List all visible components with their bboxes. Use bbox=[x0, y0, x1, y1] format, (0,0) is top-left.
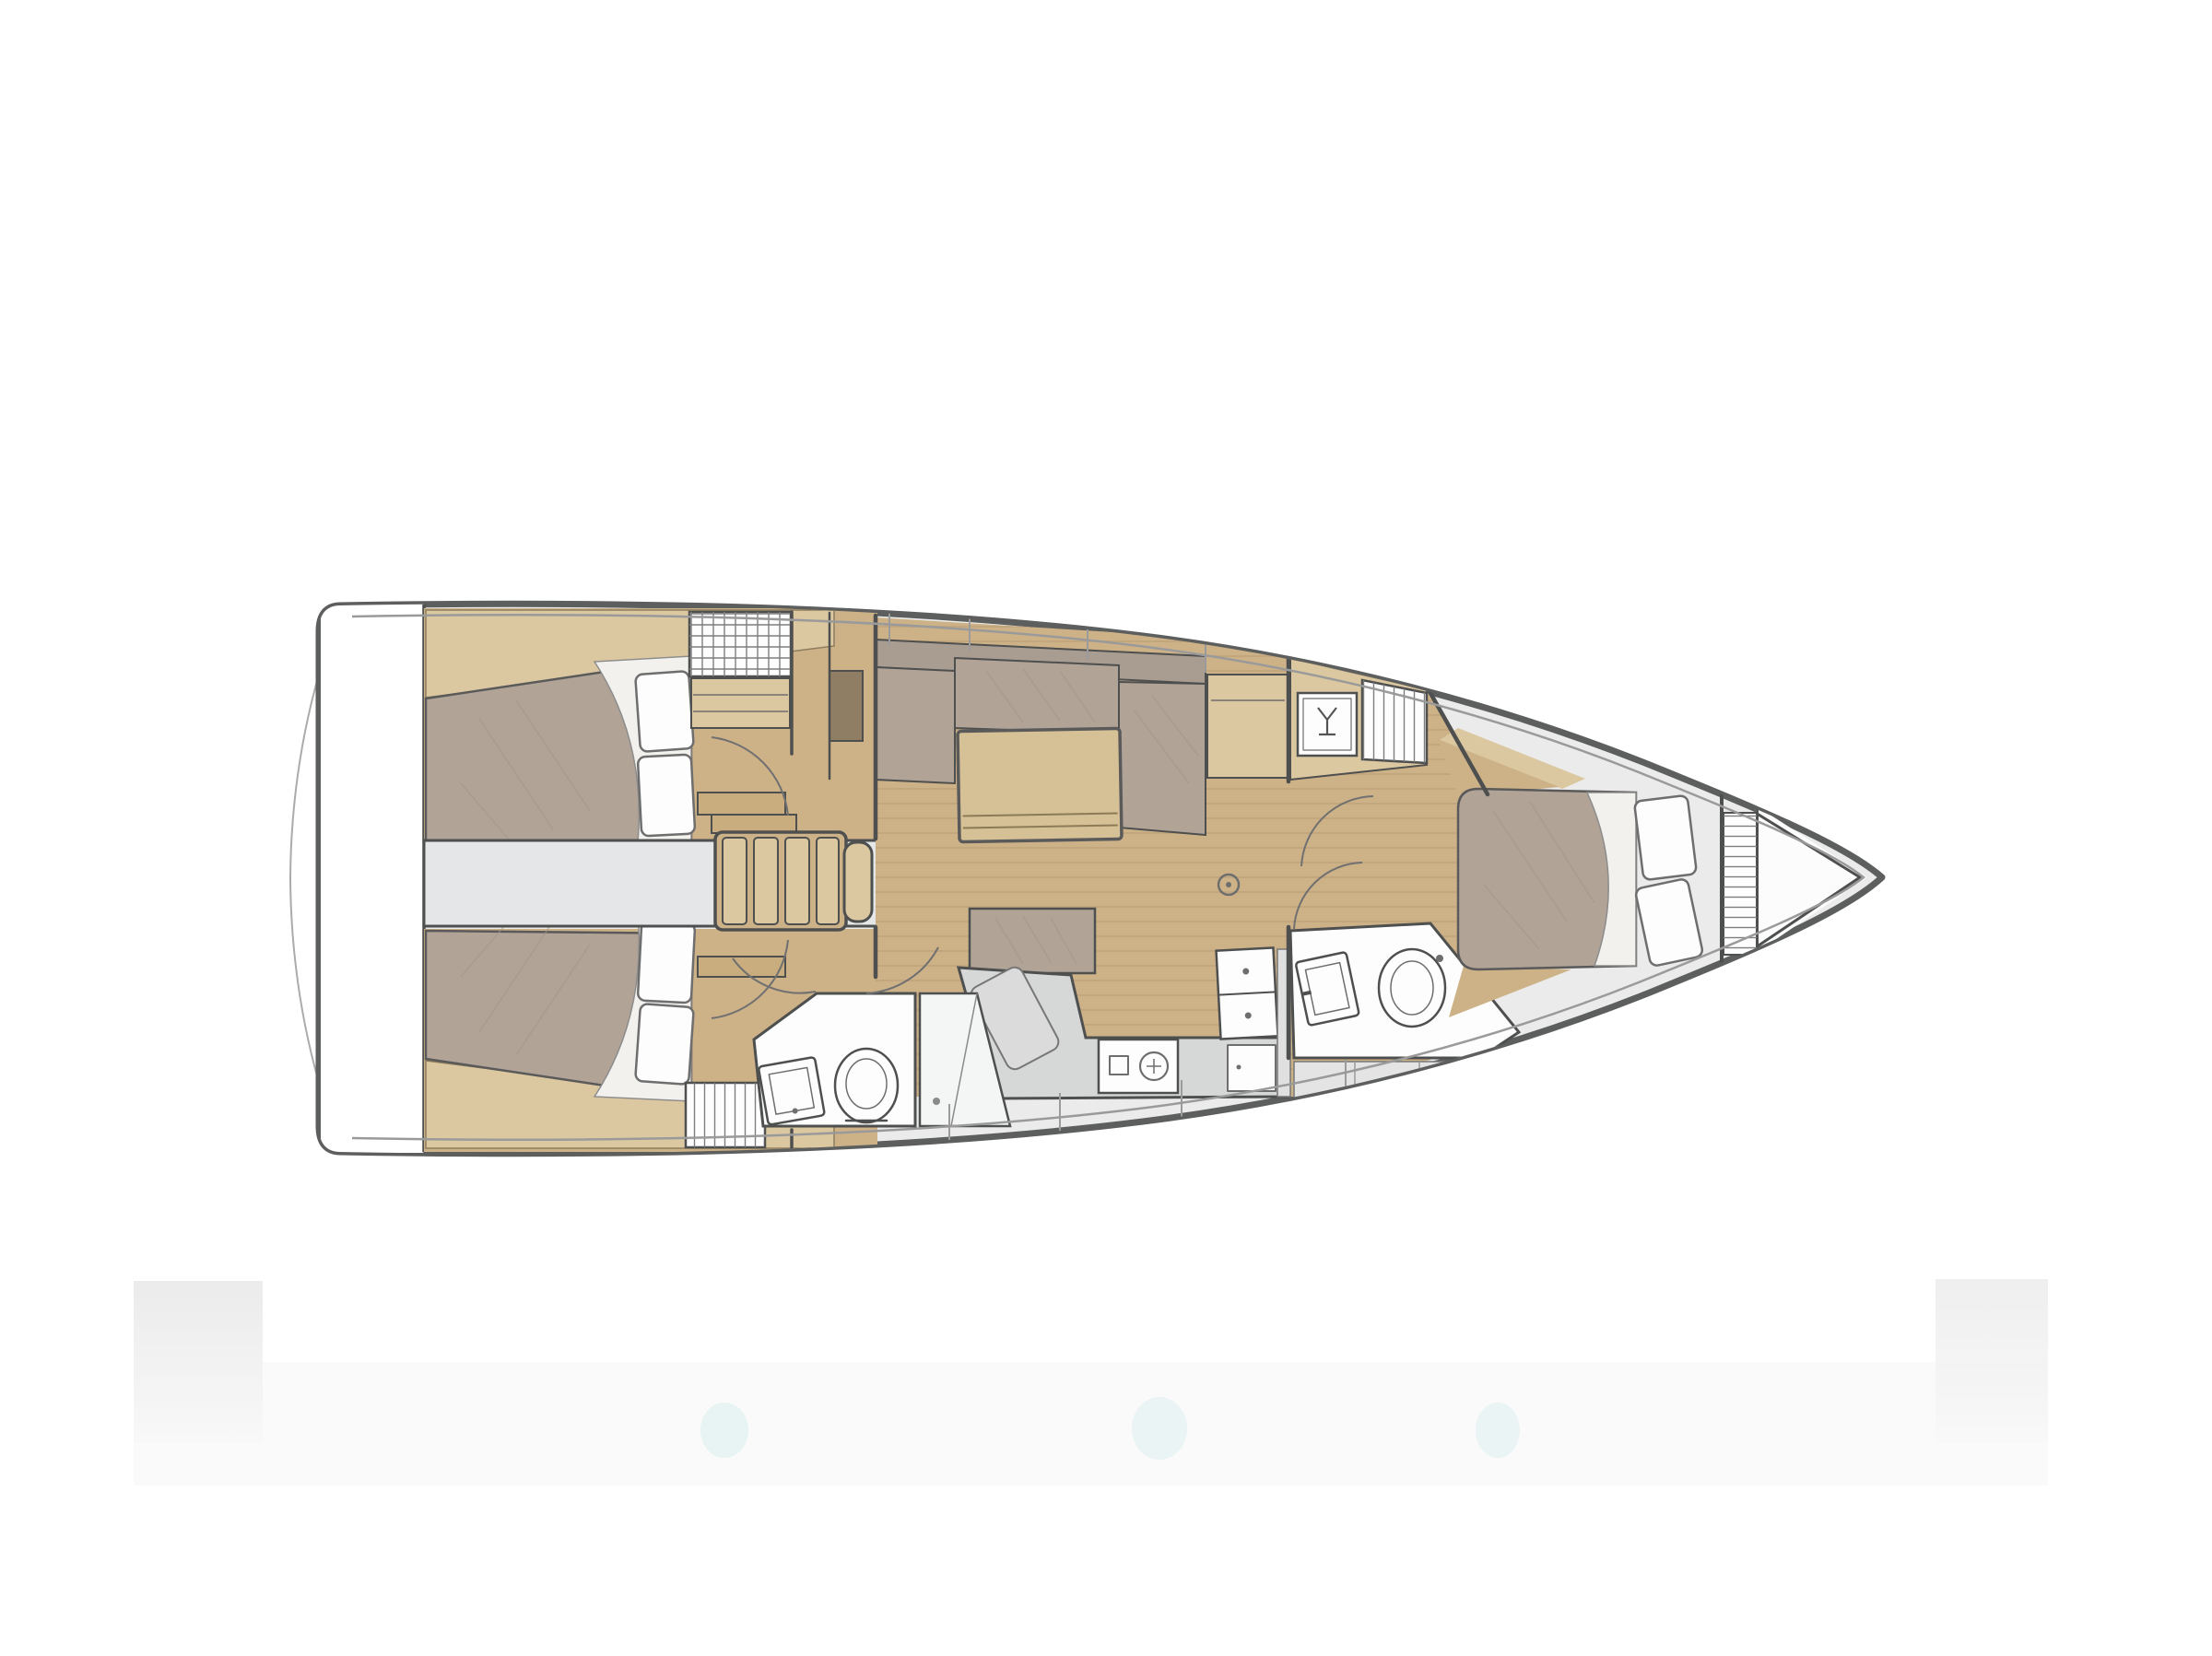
pillow bbox=[635, 671, 694, 752]
cabin-door-leaf bbox=[698, 957, 785, 977]
handrail bbox=[844, 842, 872, 922]
table-leg-dot bbox=[1226, 882, 1231, 887]
step-tread bbox=[817, 838, 839, 924]
hanging-locker-hatch-icon bbox=[1362, 680, 1427, 763]
floor-plan-canvas bbox=[0, 0, 2212, 1656]
shelf-cabinet bbox=[691, 678, 790, 728]
locker-knob bbox=[1237, 1065, 1241, 1070]
pillow bbox=[1634, 795, 1697, 880]
flush-knob bbox=[1436, 955, 1443, 962]
pillow bbox=[635, 1004, 694, 1085]
transom-locker bbox=[321, 604, 424, 1153]
pillow bbox=[638, 755, 695, 837]
watermark-band bbox=[134, 1279, 2048, 1486]
cabinet-block bbox=[1290, 658, 1427, 780]
shower-drain bbox=[933, 1098, 940, 1105]
port-aft-cabin bbox=[424, 608, 877, 863]
watermark-smudge bbox=[700, 1403, 748, 1458]
step-tread bbox=[723, 838, 747, 924]
bridge-deck bbox=[712, 815, 796, 833]
watermark-strip bbox=[134, 1362, 2048, 1486]
cross-hatch-locker-icon bbox=[689, 612, 791, 676]
wall-cabinet bbox=[829, 671, 863, 741]
aft-head bbox=[754, 993, 1010, 1126]
sink-icon bbox=[759, 1057, 825, 1125]
watermark-block-left bbox=[134, 1281, 263, 1443]
cabin-door-leaf bbox=[698, 793, 785, 815]
saloon-table bbox=[958, 728, 1122, 841]
sink-unit bbox=[1217, 947, 1278, 1039]
page bbox=[0, 0, 2212, 1656]
watermark-smudge bbox=[1476, 1403, 1520, 1458]
watermark-smudge bbox=[1132, 1397, 1187, 1460]
locker-door bbox=[1228, 1045, 1276, 1091]
watermark-block-right bbox=[1935, 1279, 2048, 1443]
step-tread bbox=[754, 838, 778, 924]
settee-chaise bbox=[1119, 682, 1206, 835]
bow-shelf-hatch bbox=[1724, 813, 1757, 955]
settee-arm bbox=[876, 667, 955, 783]
step-tread bbox=[785, 838, 809, 924]
toilet-icon bbox=[835, 1049, 898, 1122]
side-seat bbox=[1207, 675, 1288, 778]
pillow bbox=[638, 922, 695, 1004]
